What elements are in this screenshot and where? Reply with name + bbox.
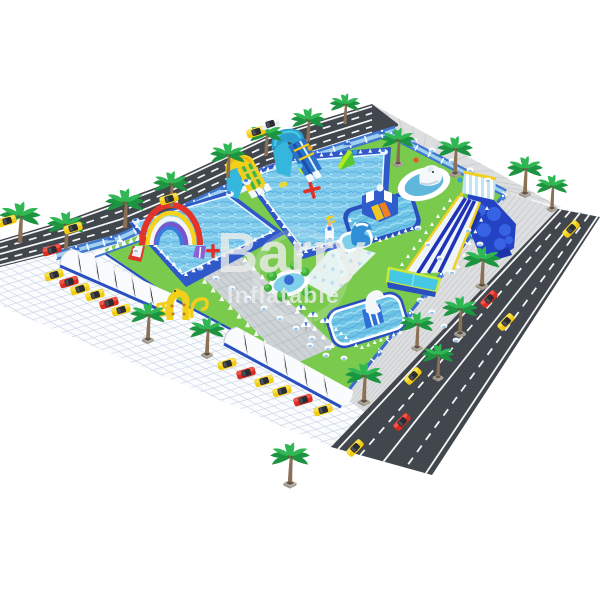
- svg-text:Inflatable: Inflatable: [227, 282, 340, 308]
- svg-text:Barry: Barry: [217, 221, 366, 285]
